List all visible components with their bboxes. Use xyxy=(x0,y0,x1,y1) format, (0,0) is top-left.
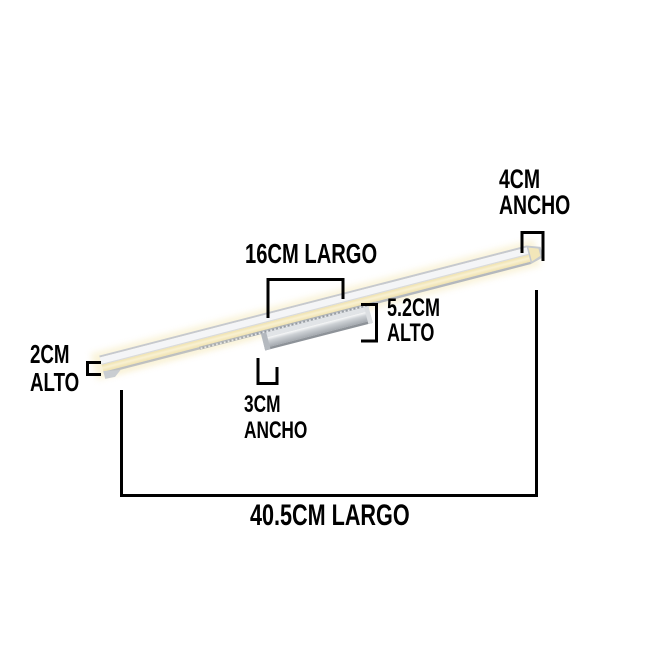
label-total-length-text: 40.5CM LARGO xyxy=(250,501,410,531)
label-end-width: 4CM ANCHO xyxy=(499,166,570,218)
label-end-width-value: 4CM xyxy=(499,166,570,192)
label-mid-length-text: 16CM LARGO xyxy=(245,240,377,268)
label-bar-height: 2CM ALTO xyxy=(30,340,79,396)
label-end-width-unit: ANCHO xyxy=(499,192,570,218)
lamp-diagram-svg xyxy=(0,0,650,650)
lamp-divider xyxy=(101,254,528,365)
label-total-height: 5.2CM ALTO xyxy=(387,296,440,346)
label-mount-width: 3CM ANCHO xyxy=(244,392,307,444)
label-total-length: 40.5CM LARGO xyxy=(250,501,410,531)
label-bar-height-value: 2CM xyxy=(30,340,79,368)
label-bar-height-unit: ALTO xyxy=(30,368,79,396)
label-mount-width-unit: ANCHO xyxy=(244,418,307,444)
label-mid-length: 16CM LARGO xyxy=(245,240,377,268)
label-total-height-value: 5.2CM xyxy=(387,296,440,321)
lamp-light-strip xyxy=(102,255,531,372)
dimension-line-mount-width xyxy=(258,358,277,384)
label-total-height-unit: ALTO xyxy=(387,321,440,346)
label-mount-width-value: 3CM xyxy=(244,392,307,418)
product-dimension-diagram: 4CM ANCHO 16CM LARGO 5.2CM ALTO 2CM ALTO… xyxy=(0,0,650,650)
